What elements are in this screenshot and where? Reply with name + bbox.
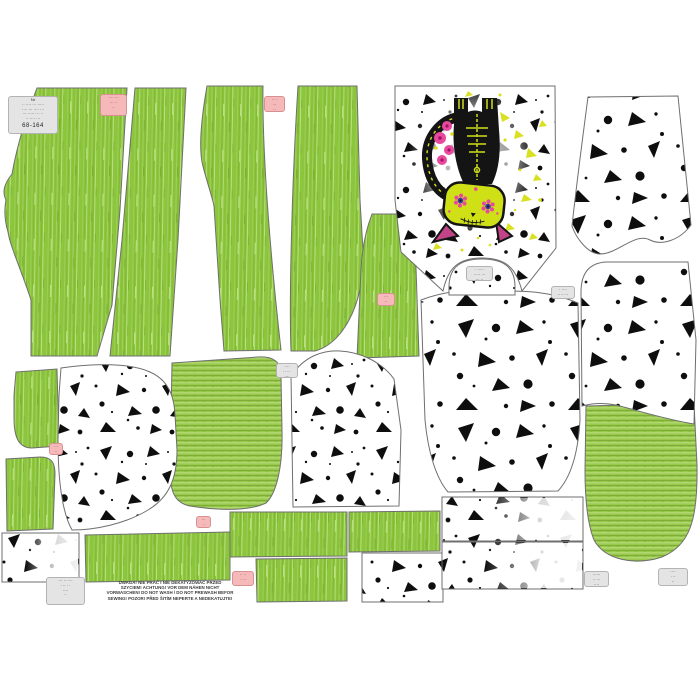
label-line: ··: [103, 106, 124, 111]
piece-label-gray: ···· · ·· ·· ·: [658, 568, 688, 586]
piece-pants-back-left: [201, 86, 281, 351]
piece-label-pink: ··· ··: [196, 516, 211, 528]
label-line: ··: [49, 593, 82, 598]
piece-label-pink: ···· ··· ··· ·· ··: [100, 94, 127, 116]
piece-band-rect-small: [362, 553, 443, 602]
fabric-panel-canvas: Nr ·· ···· ··· ····· ···· ··· ···· ··· ·…: [0, 0, 700, 700]
label-line: ····: [587, 583, 606, 587]
piece-back-bodice: [421, 291, 580, 492]
piece-label-pink: ··· ··: [377, 293, 395, 306]
piece-label-pink: ·· · ··· ··: [264, 96, 285, 112]
piece-label-gray: · ····· ····· ··· ··· ··: [466, 266, 493, 281]
piece-label-gray: · ···· ···· ··· ··· ··: [551, 286, 575, 299]
label-line: ··: [199, 523, 208, 528]
label-line: ··· ··: [554, 298, 572, 299]
splatter-fade-overlay: [3, 534, 78, 581]
label-line: ····: [279, 375, 295, 378]
piece-rib-panel: [170, 357, 282, 509]
piece-cuff-strip-1: [230, 512, 347, 557]
piece-label-pink: ··· ··: [49, 443, 63, 455]
label-line: ·: [661, 584, 685, 586]
label-line: ··: [267, 108, 282, 112]
label-line: ··: [380, 300, 392, 305]
label-line: ··· ··: [469, 278, 490, 281]
piece-sleeve-top-right: [572, 96, 691, 254]
care-warning-text: UWAGA! NIE PRAĆ I NIE DEKATYZOWAĆ PRZED …: [104, 580, 236, 601]
splatter-fade-overlay: [443, 498, 582, 540]
panel-info-label: Nr ·· ···· ··· ····· ···· ··· ···· ··· ·…: [8, 96, 58, 134]
piece-label-gray: ···· ·· ··· ····: [276, 363, 298, 378]
piece-sleeve-center: [291, 351, 401, 507]
piece-cuff-strip-3: [256, 558, 347, 602]
piece-label-gray: ······ ·· ··· ····: [584, 571, 609, 587]
warning-line: SEWING! POZOR! PŘED ŠITÍM NEPERTE A NEDE…: [104, 596, 236, 601]
label-line: ·· ···· ···: [11, 117, 55, 122]
piece-label-gray: ··· ·· ···· · ·· · · ···· ··: [46, 577, 85, 605]
piece-side-upper-left: [14, 369, 59, 448]
piece-pants-back-right: [290, 86, 363, 351]
piece-cuff-strip-long: [85, 532, 230, 582]
splatter-fade-overlay: [443, 543, 582, 588]
size-range-text: 68-164: [11, 123, 55, 130]
piece-cuff-strip-2: [349, 511, 440, 552]
piece-hood: [58, 365, 177, 530]
label-line: ··: [52, 450, 60, 455]
label-line: · ···: [235, 578, 251, 583]
piece-rib-pocket: [585, 403, 697, 561]
piece-sleeve-mid-right: [581, 262, 696, 424]
cat-skull-face: [442, 181, 506, 229]
piece-side-lower-left: [6, 457, 55, 531]
warning-line: VORWASCHEN! DO NOT WASH / DO NOT PREWASH…: [104, 590, 236, 595]
